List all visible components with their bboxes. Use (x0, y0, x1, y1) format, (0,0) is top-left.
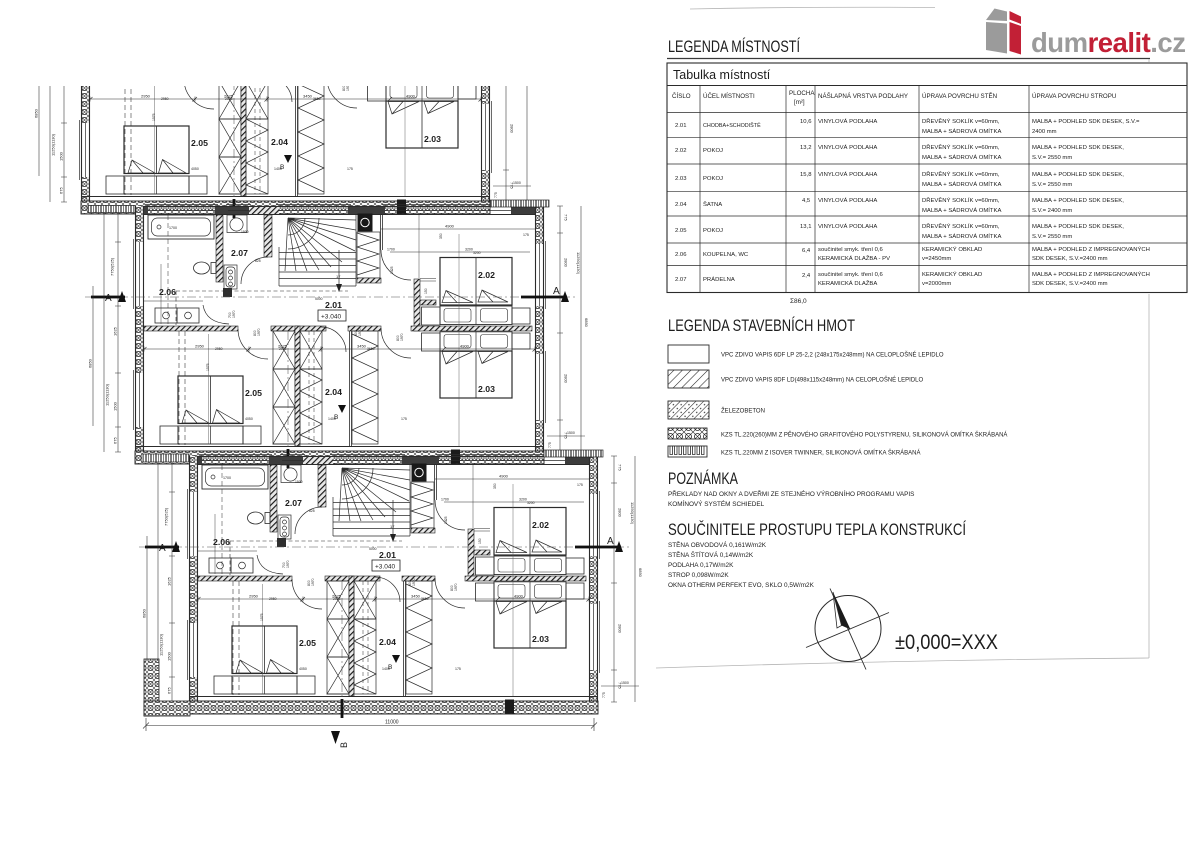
svg-text:ÚPRAVA POVRCHU STĚN: ÚPRAVA POVRCHU STĚN (922, 92, 997, 100)
svg-text:2.06: 2.06 (675, 252, 687, 258)
svg-text:2.03: 2.03 (675, 176, 687, 182)
svg-text:MALBA + SÁDROVÁ OMÍTKA: MALBA + SÁDROVÁ OMÍTKA (922, 207, 1001, 214)
svg-text:DŘEVĚNÝ SOKLÍK v=60mm,: DŘEVĚNÝ SOKLÍK v=60mm, (922, 170, 1000, 178)
svg-text:2.07: 2.07 (675, 277, 686, 283)
svg-text:LEGENDA STAVEBNÍCH HMOT: LEGENDA STAVEBNÍCH HMOT (668, 316, 855, 335)
svg-text:VINYLOVÁ PODLAHA: VINYLOVÁ PODLAHA (818, 118, 877, 125)
svg-text:2,4: 2,4 (802, 273, 811, 279)
svg-text:±0,000=XXX: ±0,000=XXX (895, 631, 998, 654)
svg-text:KERAMICKÝ OBKLAD: KERAMICKÝ OBKLAD (922, 246, 982, 253)
svg-text:součinitel smyk. tření 0,6: součinitel smyk. tření 0,6 (818, 272, 884, 278)
svg-text:součinitel smyk. tření 0,6: součinitel smyk. tření 0,6 (818, 247, 884, 253)
svg-text:DŘEVĚNÝ SOKLÍK v=60mm,: DŘEVĚNÝ SOKLÍK v=60mm, (922, 117, 1000, 125)
svg-text:PRÁDELNA: PRÁDELNA (703, 276, 735, 283)
svg-text:SDK DESEK, S.V.=2400 mm: SDK DESEK, S.V.=2400 mm (1032, 281, 1108, 287)
svg-text:2.02: 2.02 (675, 148, 686, 154)
svg-text:VPC ZDIVO VAPIS 6DF LP 25-2,2: VPC ZDIVO VAPIS 6DF LP 25-2,2 (248x175x2… (721, 352, 944, 359)
svg-text:KZS TL.220(260)MM Z PĚNOVÉHO G: KZS TL.220(260)MM Z PĚNOVÉHO GRAFITOVÉHO… (721, 431, 1007, 439)
svg-text:4,5: 4,5 (802, 198, 811, 204)
svg-text:KERAMICKÁ DLAŽBA: KERAMICKÁ DLAŽBA (818, 279, 877, 287)
svg-text:STĚNA ŠTÍTOVÁ 0,14W/m2K: STĚNA ŠTÍTOVÁ 0,14W/m2K (668, 550, 754, 559)
svg-text:PŘEKLADY NAD OKNY A DVEŘMI ZE: PŘEKLADY NAD OKNY A DVEŘMI ZE STEJNÉHO V… (668, 489, 914, 498)
svg-text:PLOCHA: PLOCHA (789, 90, 815, 97)
svg-text:LEGENDA MÍSTNOSTÍ: LEGENDA MÍSTNOSTÍ (668, 37, 800, 56)
svg-text:POKOJ: POKOJ (703, 148, 723, 154)
svg-text:15,8: 15,8 (800, 172, 812, 178)
svg-text:Tabulka místností: Tabulka místností (673, 68, 771, 82)
svg-text:S.V.= 2550 mm: S.V.= 2550 mm (1032, 182, 1072, 188)
svg-text:2.05: 2.05 (675, 228, 687, 234)
svg-text:POKOJ: POKOJ (703, 228, 723, 234)
svg-text:NÁŠLAPNÁ VRSTVA PODLAHY: NÁŠLAPNÁ VRSTVA PODLAHY (818, 93, 908, 100)
svg-text:DŘEVĚNÝ SOKLÍK v=60mm,: DŘEVĚNÝ SOKLÍK v=60mm, (922, 222, 1000, 230)
svg-text:ÚČEL MÍSTNOSTI: ÚČEL MÍSTNOSTI (703, 93, 755, 100)
svg-text:13,2: 13,2 (800, 145, 811, 151)
svg-text:2.01: 2.01 (675, 123, 686, 129)
svg-text:KERAMICKÁ DLAŽBA - PV: KERAMICKÁ DLAŽBA - PV (818, 254, 890, 262)
svg-text:S.V.= 2550 mm: S.V.= 2550 mm (1032, 234, 1072, 240)
svg-text:VINYLOVÁ PODLAHA: VINYLOVÁ PODLAHA (818, 144, 877, 151)
svg-text:KZS TL.220MM Z ISOVER TWINNER,: KZS TL.220MM Z ISOVER TWINNER, SILIKONOV… (721, 450, 921, 457)
svg-text:Σ86,0: Σ86,0 (790, 298, 807, 305)
svg-text:VPC ZDIVO VAPIS 8DF LD(498x115: VPC ZDIVO VAPIS 8DF LD(498x115x248mm) NA… (721, 377, 924, 384)
svg-text:B: B (339, 742, 349, 748)
svg-text:v=2000mm: v=2000mm (922, 281, 951, 287)
svg-text:[m²]: [m²] (794, 99, 805, 106)
svg-text:6,4: 6,4 (802, 248, 811, 254)
svg-text:POKOJ: POKOJ (703, 176, 723, 182)
svg-text:VINYLOVÁ PODLAHA: VINYLOVÁ PODLAHA (818, 171, 877, 178)
svg-text:VINYLOVÁ PODLAHA: VINYLOVÁ PODLAHA (818, 223, 877, 230)
svg-text:MALBA + PODHLED SDK DESEK,: MALBA + PODHLED SDK DESEK, (1032, 172, 1124, 178)
svg-text:STĚNA OBVODOVÁ 0,161W/m2K: STĚNA OBVODOVÁ 0,161W/m2K (668, 540, 767, 549)
svg-text:OKNA OTHERM PERFEKT EVO, SKL: OKNA OTHERM PERFEKT EVO, SKLO 0,5W/m2K (668, 582, 815, 589)
svg-text:KERAMICKÝ OBKLAD: KERAMICKÝ OBKLAD (922, 271, 982, 278)
svg-text:SDK DESEK, S.V.=2400 mm: SDK DESEK, S.V.=2400 mm (1032, 256, 1108, 262)
svg-text:dumrealit.cz: dumrealit.cz (1031, 27, 1185, 58)
svg-text:MALBA + SÁDROVÁ OMÍTKA: MALBA + SÁDROVÁ OMÍTKA (922, 154, 1001, 161)
svg-text:KOUPELNA, WC: KOUPELNA, WC (703, 252, 749, 258)
svg-text:VINYLOVÁ PODLAHA: VINYLOVÁ PODLAHA (818, 197, 877, 204)
svg-text:MALBA + PODHLED SDK DESEK,: MALBA + PODHLED SDK DESEK, (1032, 145, 1124, 151)
svg-text:PODLAHA 0,17W/m2K: PODLAHA 0,17W/m2K (668, 562, 734, 569)
svg-text:CHODBA+SCHODIŠTĚ: CHODBA+SCHODIŠTĚ (703, 121, 761, 129)
svg-text:MALBA + PODHLED SDK DESEK,: MALBA + PODHLED SDK DESEK, (1032, 198, 1124, 204)
svg-text:MALBA + SÁDROVÁ OMÍTKA: MALBA + SÁDROVÁ OMÍTKA (922, 233, 1001, 240)
svg-text:MALBA + PODHLED SDK DESEK, S.V: MALBA + PODHLED SDK DESEK, S.V.= (1032, 119, 1140, 125)
svg-text:ÚPRAVA POVRCHU STROPU: ÚPRAVA POVRCHU STROPU (1032, 93, 1116, 100)
svg-text:2400 mm: 2400 mm (1032, 129, 1057, 135)
svg-text:POZNÁMKA: POZNÁMKA (668, 469, 738, 488)
svg-text:ŽELEZOBETON: ŽELEZOBETON (721, 407, 765, 415)
svg-text:13,1: 13,1 (800, 224, 811, 230)
svg-text:10,6: 10,6 (800, 119, 812, 125)
svg-text:ČÍSLO: ČÍSLO (672, 93, 691, 100)
svg-text:MALBA + SÁDROVÁ OMÍTKA: MALBA + SÁDROVÁ OMÍTKA (922, 128, 1001, 135)
svg-text:DŘEVĚNÝ SOKLÍK v=60mm,: DŘEVĚNÝ SOKLÍK v=60mm, (922, 143, 1000, 151)
svg-text:MALBA + SÁDROVÁ OMÍTKA: MALBA + SÁDROVÁ OMÍTKA (922, 181, 1001, 188)
svg-text:2.04: 2.04 (675, 202, 687, 208)
svg-text:S.V.= 2400 mm: S.V.= 2400 mm (1032, 208, 1072, 214)
svg-text:11000: 11000 (385, 720, 399, 726)
svg-text:KOMÍNOVÝ SYSTÉM SCHIEDEL: KOMÍNOVÝ SYSTÉM SCHIEDEL (668, 499, 765, 508)
svg-text:MALBA + PODHLED Z IMPREGNOVANÝ: MALBA + PODHLED Z IMPREGNOVANÝCH (1032, 271, 1150, 278)
svg-text:v=2450mm: v=2450mm (922, 256, 951, 262)
svg-text:MALBA + PODHLED SDK DESEK,: MALBA + PODHLED SDK DESEK, (1032, 224, 1124, 230)
svg-text:SOUČINITELE PROSTUPU TEPLA KON: SOUČINITELE PROSTUPU TEPLA KONSTRUKCÍ (668, 520, 966, 539)
svg-text:S.V.= 2550 mm: S.V.= 2550 mm (1032, 155, 1072, 161)
svg-text:MALBA + PODHLED Z IMPREGNOVANÝ: MALBA + PODHLED Z IMPREGNOVANÝCH (1032, 246, 1150, 253)
svg-text:DŘEVĚNÝ SOKLÍK v=60mm,: DŘEVĚNÝ SOKLÍK v=60mm, (922, 196, 1000, 204)
svg-text:STROP 0,098W/m2K: STROP 0,098W/m2K (668, 572, 729, 579)
svg-text:ŠATNA: ŠATNA (703, 201, 722, 208)
